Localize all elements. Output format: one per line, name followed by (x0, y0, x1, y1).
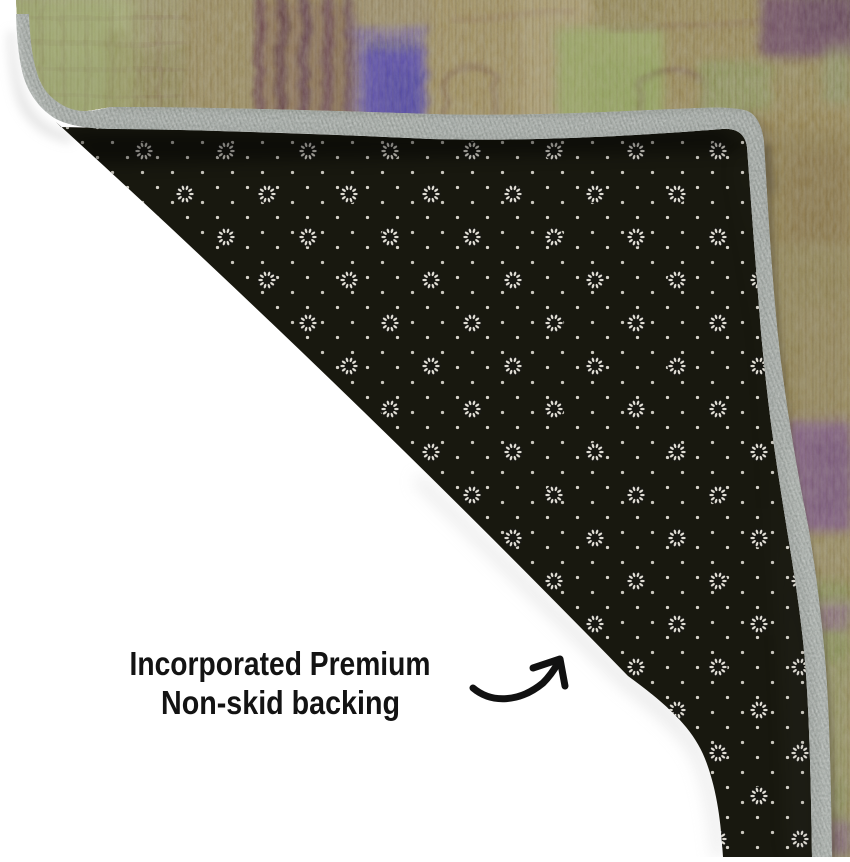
svg-text:Incorporated Premium: Incorporated Premium (130, 645, 431, 683)
svg-text:Non-skid backing: Non-skid backing (161, 684, 400, 721)
